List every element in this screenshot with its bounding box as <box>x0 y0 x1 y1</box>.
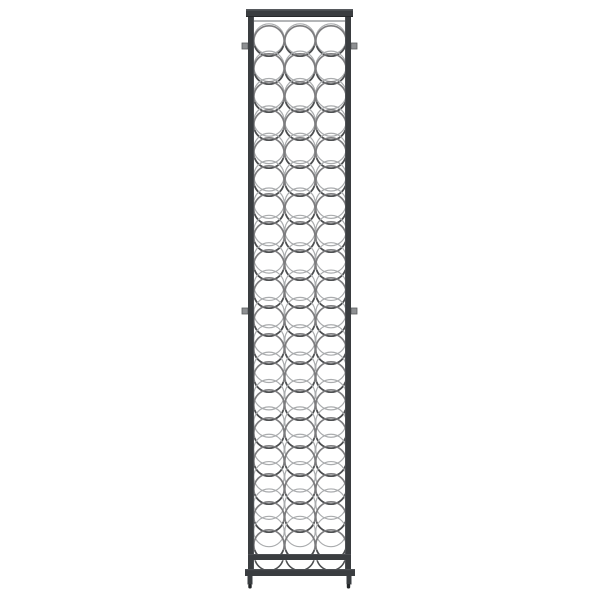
mounting-peg <box>242 308 248 314</box>
right-foot <box>347 584 350 589</box>
left-leg <box>248 576 253 585</box>
left-foot <box>248 584 251 589</box>
mounting-peg <box>242 43 248 49</box>
wine-rack-image <box>0 0 600 600</box>
right-leg <box>347 576 352 585</box>
top-wire <box>254 20 345 22</box>
product-photo <box>0 0 600 600</box>
mounting-peg <box>351 43 357 49</box>
mounting-peg <box>351 308 357 314</box>
